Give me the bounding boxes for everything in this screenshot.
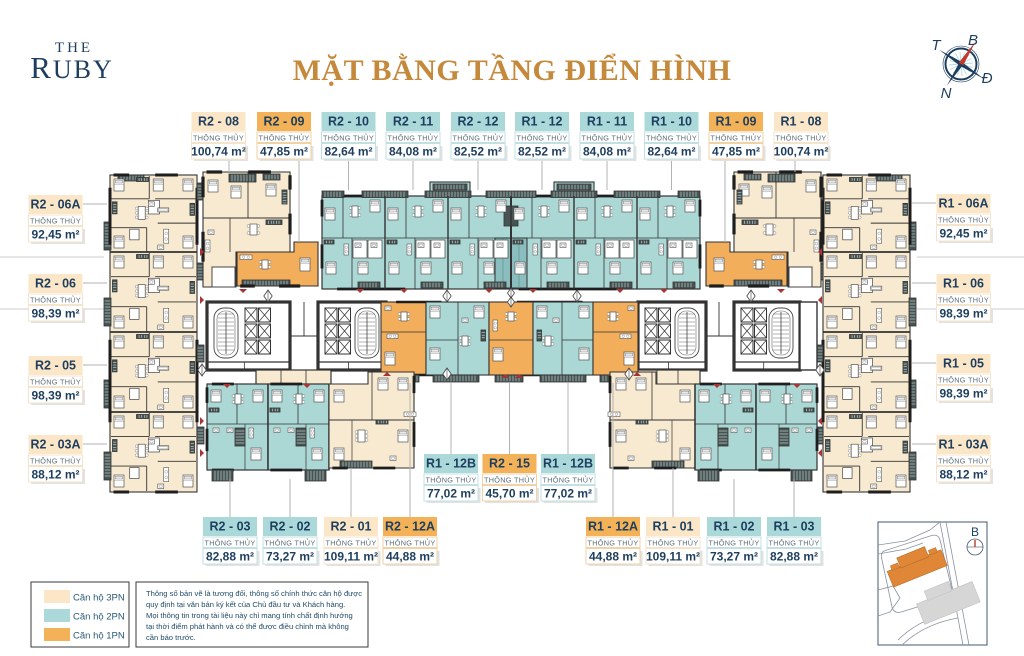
svg-text:THÔNG THỦY: THÔNG THỦY xyxy=(30,217,81,226)
svg-text:82,52 m²: 82,52 m² xyxy=(454,145,502,159)
svg-text:109,11 m²: 109,11 m² xyxy=(646,550,700,564)
svg-text:cần báo trước.: cần báo trước. xyxy=(146,633,196,642)
svg-text:R1 - 12B: R1 - 12B xyxy=(543,457,593,471)
svg-text:47,85 m²: 47,85 m² xyxy=(712,145,760,159)
svg-text:THÔNG THỦY: THÔNG THỦY xyxy=(542,476,593,485)
svg-text:Thông số bản vẽ là tương đối,: Thông số bản vẽ là tương đối, thông số c… xyxy=(146,589,362,598)
svg-text:THÔNG THỦY: THÔNG THỦY xyxy=(204,539,255,548)
svg-text:THÔNG THỦY: THÔNG THỦY xyxy=(581,134,632,143)
svg-text:R2 - 06: R2 - 06 xyxy=(35,277,76,291)
svg-text:R2 - 12A: R2 - 12A xyxy=(385,520,435,534)
svg-text:THÔNG THỦY: THÔNG THỦY xyxy=(775,134,826,143)
svg-text:92,45 m²: 92,45 m² xyxy=(31,228,79,242)
svg-text:100,74 m²: 100,74 m² xyxy=(191,145,246,159)
svg-text:73,27 m²: 73,27 m² xyxy=(266,550,314,564)
svg-text:92,45 m²: 92,45 m² xyxy=(939,227,987,241)
svg-text:98,39 m²: 98,39 m² xyxy=(31,389,79,403)
svg-text:R1 - 02: R1 - 02 xyxy=(714,520,755,534)
svg-text:R1 - 10: R1 - 10 xyxy=(651,115,692,129)
svg-text:82,52 m²: 82,52 m² xyxy=(518,145,566,159)
svg-text:THÔNG THỦY: THÔNG THỦY xyxy=(323,134,374,143)
svg-text:THÔNG THỦY: THÔNG THỦY xyxy=(193,134,244,143)
svg-text:N: N xyxy=(941,85,952,102)
svg-text:R1 - 12B: R1 - 12B xyxy=(426,457,476,471)
svg-text:R1 - 01: R1 - 01 xyxy=(653,520,694,534)
svg-text:THÔNG THỦY: THÔNG THỦY xyxy=(484,476,535,485)
svg-text:R1 - 03A: R1 - 03A xyxy=(938,438,988,452)
svg-text:77,02 m²: 77,02 m² xyxy=(544,487,592,501)
svg-text:THÔNG THỦY: THÔNG THỦY xyxy=(938,216,989,225)
svg-text:quy định tại văn bản ký kết củ: quy định tại văn bản ký kết của Chủ đầu … xyxy=(146,600,345,609)
svg-text:THÔNG THỦY: THÔNG THỦY xyxy=(938,296,989,305)
svg-text:R1 - 12A: R1 - 12A xyxy=(588,520,638,534)
svg-text:THÔNG THỦY: THÔNG THỦY xyxy=(647,539,698,548)
svg-text:R2 - 06A: R2 - 06A xyxy=(30,198,80,212)
svg-text:THÔNG THỦY: THÔNG THỦY xyxy=(30,378,81,387)
svg-text:84,08 m²: 84,08 m² xyxy=(389,145,437,159)
svg-text:Căn hộ 1PN: Căn hộ 1PN xyxy=(73,631,125,642)
svg-text:47,85 m²: 47,85 m² xyxy=(260,145,308,159)
svg-text:R2 - 15: R2 - 15 xyxy=(489,457,530,471)
svg-text:THÔNG THỦY: THÔNG THỦY xyxy=(425,476,476,485)
svg-text:THÔNG THỦY: THÔNG THỦY xyxy=(708,539,759,548)
svg-text:R2 - 10: R2 - 10 xyxy=(328,115,369,129)
svg-text:77,02 m²: 77,02 m² xyxy=(427,487,475,501)
svg-text:R2 - 11: R2 - 11 xyxy=(393,115,433,129)
svg-text:THÔNG THỦY: THÔNG THỦY xyxy=(30,296,81,305)
svg-text:THÔNG THỦY: THÔNG THỦY xyxy=(325,539,376,548)
svg-text:R2 - 03A: R2 - 03A xyxy=(30,438,80,452)
svg-text:44,88 m²: 44,88 m² xyxy=(589,550,637,564)
svg-text:THÔNG THỦY: THÔNG THỦY xyxy=(768,539,819,548)
svg-text:THÔNG THỦY: THÔNG THỦY xyxy=(646,134,697,143)
svg-text:B: B xyxy=(968,32,978,49)
svg-text:Mọi thông tin trong tài liệu n: Mọi thông tin trong tài liệu này chỉ man… xyxy=(146,611,353,620)
svg-text:R2 - 03: R2 - 03 xyxy=(210,520,251,534)
svg-text:R2 - 02: R2 - 02 xyxy=(270,520,311,534)
svg-text:82,64 m²: 82,64 m² xyxy=(324,145,372,159)
svg-text:R1 - 03: R1 - 03 xyxy=(774,520,815,534)
svg-text:100,74 m²: 100,74 m² xyxy=(774,145,829,159)
svg-text:R1 - 05: R1 - 05 xyxy=(943,357,984,371)
svg-text:THÔNG THỦY: THÔNG THỦY xyxy=(264,539,315,548)
svg-text:THÔNG THỦY: THÔNG THỦY xyxy=(258,134,309,143)
svg-text:82,88 m²: 82,88 m² xyxy=(770,550,818,564)
svg-text:88,12 m²: 88,12 m² xyxy=(939,468,987,482)
svg-text:98,39 m²: 98,39 m² xyxy=(939,307,987,321)
svg-text:R1 - 08: R1 - 08 xyxy=(781,115,822,129)
svg-text:45,70 m²: 45,70 m² xyxy=(485,487,533,501)
svg-text:82,88 m²: 82,88 m² xyxy=(206,550,254,564)
svg-text:R1 - 11: R1 - 11 xyxy=(587,115,627,129)
svg-text:R2 - 01: R2 - 01 xyxy=(331,520,372,534)
svg-text:Căn hộ 3PN: Căn hộ 3PN xyxy=(73,593,125,604)
svg-text:Đ: Đ xyxy=(982,70,993,87)
svg-text:R2 - 09: R2 - 09 xyxy=(264,115,305,129)
svg-text:84,08 m²: 84,08 m² xyxy=(583,145,631,159)
svg-text:B: B xyxy=(971,525,979,539)
svg-text:THÔNG THỦY: THÔNG THỦY xyxy=(587,539,638,548)
svg-text:109,11 m²: 109,11 m² xyxy=(324,550,378,564)
svg-text:98,39 m²: 98,39 m² xyxy=(939,387,987,401)
svg-text:R2 - 05: R2 - 05 xyxy=(35,359,76,373)
svg-text:R1 - 09: R1 - 09 xyxy=(716,115,757,129)
svg-text:THÔNG THỦY: THÔNG THỦY xyxy=(710,134,761,143)
svg-text:R1 - 06A: R1 - 06A xyxy=(938,197,988,211)
svg-text:R1 - 06: R1 - 06 xyxy=(943,277,984,291)
svg-text:98,39 m²: 98,39 m² xyxy=(31,307,79,321)
svg-text:THÔNG THỦY: THÔNG THỦY xyxy=(938,457,989,466)
svg-text:88,12 m²: 88,12 m² xyxy=(31,468,79,482)
svg-text:THÔNG THỦY: THÔNG THỦY xyxy=(384,539,435,548)
svg-text:THÔNG THỦY: THÔNG THỦY xyxy=(452,134,503,143)
svg-text:RUBY: RUBY xyxy=(30,50,114,85)
svg-text:73,27 m²: 73,27 m² xyxy=(710,550,758,564)
svg-text:44,88 m²: 44,88 m² xyxy=(386,550,434,564)
svg-text:R1 - 12: R1 - 12 xyxy=(522,115,563,129)
svg-text:THÔNG THỦY: THÔNG THỦY xyxy=(387,134,438,143)
svg-text:82,64 m²: 82,64 m² xyxy=(647,145,695,159)
svg-text:MẶT BẰNG TẦNG ĐIỂN HÌNH: MẶT BẰNG TẦNG ĐIỂN HÌNH xyxy=(293,53,732,87)
svg-text:Căn hộ 2PN: Căn hộ 2PN xyxy=(73,612,125,623)
svg-text:R2 - 12: R2 - 12 xyxy=(458,115,499,129)
svg-text:THÔNG THỦY: THÔNG THỦY xyxy=(30,457,81,466)
svg-text:R2 - 08: R2 - 08 xyxy=(198,115,239,129)
svg-text:THÔNG THỦY: THÔNG THỦY xyxy=(516,134,567,143)
svg-text:THÔNG THỦY: THÔNG THỦY xyxy=(938,376,989,385)
svg-text:tại thời điểm phát hành và có: tại thời điểm phát hành và có thể được đ… xyxy=(146,622,349,631)
svg-text:THE: THE xyxy=(55,40,93,56)
